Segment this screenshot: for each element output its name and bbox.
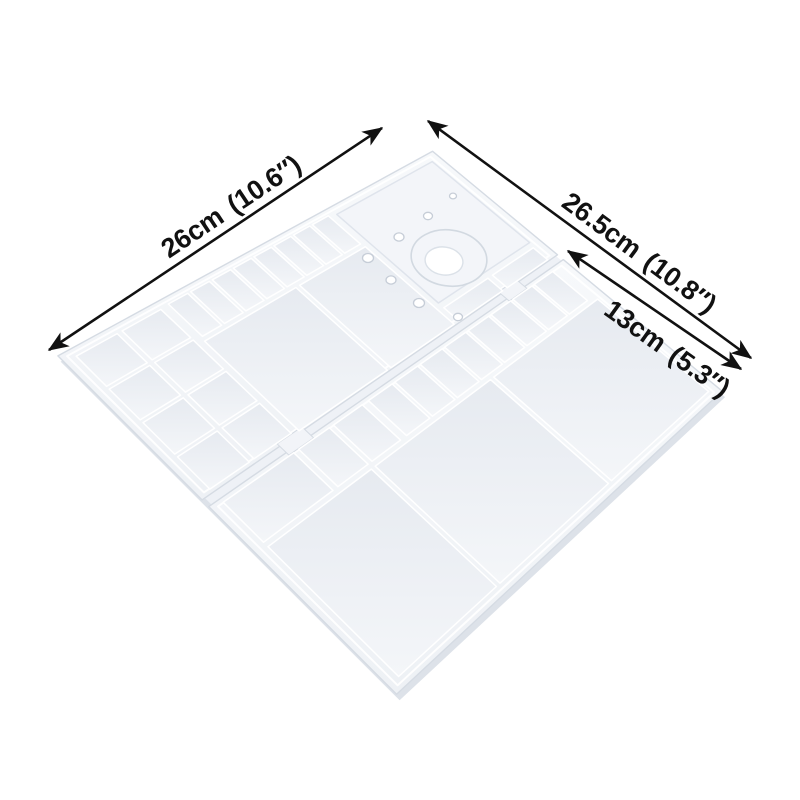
brush-hole bbox=[414, 298, 425, 307]
brush-hole bbox=[386, 276, 396, 284]
brush-hole bbox=[454, 313, 463, 320]
product-photo-scene: 26cm(10.6″) 26.5cm(10.8″) 13cm(5.3″) bbox=[0, 0, 800, 800]
brush-hole bbox=[363, 253, 374, 262]
dimension-inches: (10.6″) bbox=[221, 149, 306, 220]
brush-hole bbox=[450, 193, 457, 199]
brush-hole bbox=[424, 212, 433, 219]
palette-dimension-figure: 26cm(10.6″) 26.5cm(10.8″) 13cm(5.3″) bbox=[0, 0, 800, 800]
brush-hole bbox=[394, 233, 404, 241]
